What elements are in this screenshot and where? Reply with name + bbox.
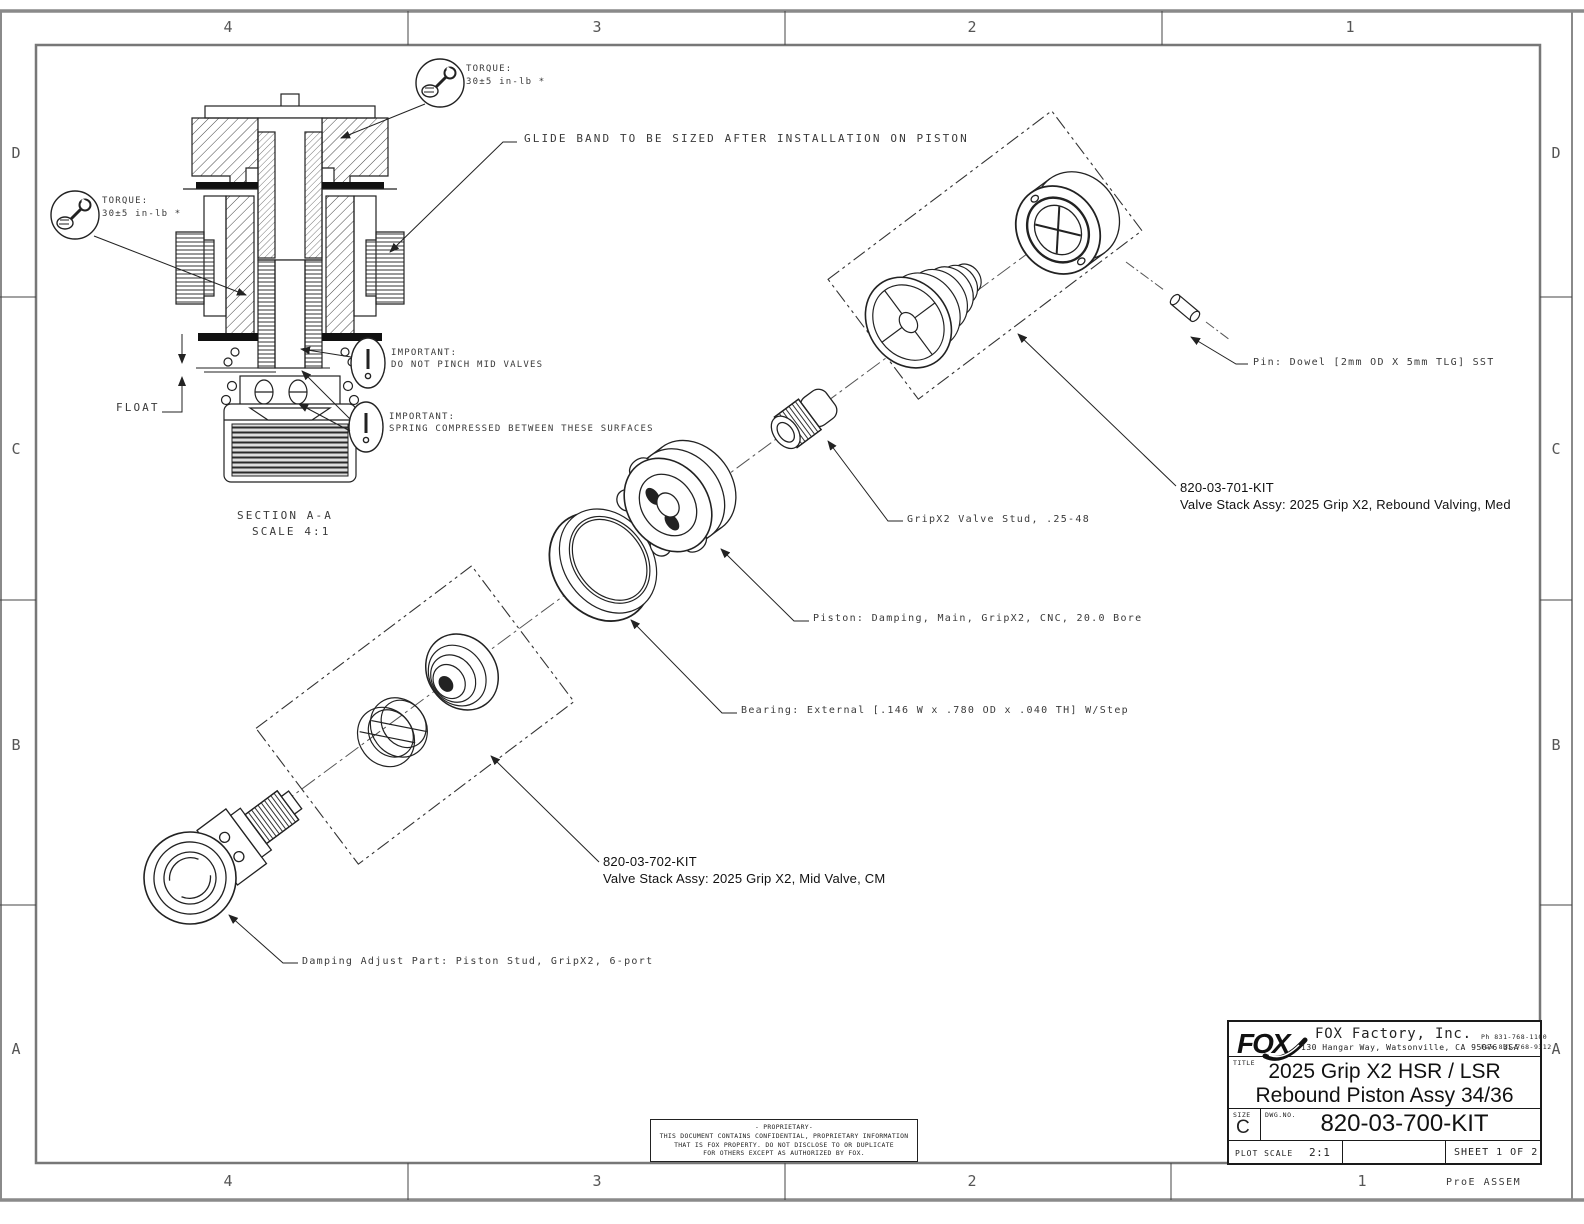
torque-icon-left <box>51 191 99 239</box>
valve-stud-label: GripX2 Valve Stud, .25-48 <box>907 514 1090 525</box>
kit-702-desc: Valve Stack Assy: 2025 Grip X2, Mid Valv… <box>603 871 885 886</box>
proprietary-line3: THAT IS FOX PROPERTY. DO NOT DISCLOSE TO… <box>651 1141 917 1150</box>
zone-left-d: D <box>4 144 28 162</box>
proe-note: ProE ASSEM <box>1446 1177 1521 1188</box>
plot-scale-value: 2:1 <box>1309 1146 1330 1159</box>
proprietary-line2: THIS DOCUMENT CONTAINS CONFIDENTIAL, PRO… <box>651 1132 917 1141</box>
zone-left-c: C <box>4 440 28 458</box>
drawing-sheet: 4 3 2 1 4 3 2 1 D C B A D C B A TORQUE: … <box>0 0 1584 1224</box>
drawing-title-line1: 2025 Grip X2 HSR / LSR <box>1229 1060 1540 1084</box>
torque-left-label: TORQUE: <box>102 196 148 206</box>
zone-bottom-2: 2 <box>960 1172 984 1190</box>
retainer-drawing <box>998 155 1136 291</box>
zone-left-b: B <box>4 736 28 754</box>
zone-top-1: 1 <box>1338 18 1362 36</box>
torque-top-value: 30±5 in-lb * <box>466 77 545 87</box>
zone-top-3: 3 <box>585 18 609 36</box>
mid-valve-stack-drawing <box>411 620 513 725</box>
zone-bottom-4: 4 <box>216 1172 240 1190</box>
mid-valve-kit-box <box>256 566 574 864</box>
important-1-text: DO NOT PINCH MID VALVES <box>391 360 543 370</box>
proprietary-notice: - PROPRIETARY- THIS DOCUMENT CONTAINS CO… <box>650 1119 918 1162</box>
important-icon-2 <box>349 402 383 452</box>
company-phone: Ph 831-768-1100 <box>1481 1033 1547 1041</box>
dowel-pin-drawing <box>1169 293 1202 323</box>
torque-top-label: TORQUE: <box>466 64 512 74</box>
section-scale: SCALE 4:1 <box>252 525 331 538</box>
zone-bottom-3: 3 <box>585 1172 609 1190</box>
mid-valve-springs-drawing <box>346 686 439 778</box>
kit-701-number: 820-03-701-KIT <box>1180 480 1274 495</box>
sheet-info: SHEET 1 OF 2 <box>1454 1147 1538 1158</box>
dwg-number: 820-03-700-KIT <box>1249 1110 1560 1138</box>
torque-left-value: 30±5 in-lb * <box>102 209 181 219</box>
torque-icon-top <box>416 59 464 107</box>
float-label: FLOAT <box>116 401 160 414</box>
pin-label: Pin: Dowel [2mm OD X 5mm TLG] SST <box>1253 357 1495 368</box>
important-2-label: IMPORTANT: <box>389 412 455 422</box>
zone-right-b: B <box>1544 736 1568 754</box>
damping-adjust-label: Damping Adjust Part: Piston Stud, GripX2… <box>302 956 653 967</box>
zone-top-4: 4 <box>216 18 240 36</box>
important-icon-1 <box>351 338 385 388</box>
piston-label: Piston: Damping, Main, GripX2, CNC, 20.0… <box>813 613 1142 624</box>
damping-adjust-part-drawing <box>126 763 323 942</box>
important-2-text: SPRING COMPRESSED BETWEEN THESE SURFACES <box>389 424 654 434</box>
kit-701-desc: Valve Stack Assy: 2025 Grip X2, Rebound … <box>1180 497 1511 512</box>
section-title: SECTION A-A <box>237 509 333 522</box>
rebound-stack-drawing <box>848 233 1006 385</box>
title-block: FOX FOX Factory, Inc. 130 Hangar Way, Wa… <box>1227 1020 1542 1165</box>
kit-702-number: 820-03-702-KIT <box>603 854 697 869</box>
company-fax: Fax 831-768-9312 <box>1481 1043 1552 1051</box>
zone-right-d: D <box>1544 144 1568 162</box>
proprietary-line1: - PROPRIETARY- <box>651 1123 917 1132</box>
important-1-label: IMPORTANT: <box>391 348 457 358</box>
company-name: FOX Factory, Inc. <box>1315 1026 1472 1042</box>
zone-bottom-1: 1 <box>1350 1172 1374 1190</box>
zone-top-2: 2 <box>960 18 984 36</box>
float-dimension <box>162 334 182 412</box>
zone-right-c: C <box>1544 440 1568 458</box>
proprietary-line4: FOR OTHERS EXCEPT AS AUTHORIZED BY FOX. <box>651 1149 917 1158</box>
bearing-label: Bearing: External [.146 W x .780 OD x .0… <box>741 705 1129 716</box>
glide-band-note: GLIDE BAND TO BE SIZED AFTER INSTALLATIO… <box>524 132 969 145</box>
drawing-title-line2: Rebound Piston Assy 34/36 <box>1229 1084 1540 1108</box>
plot-scale-label: PLOT SCALE <box>1235 1149 1293 1158</box>
zone-left-a: A <box>4 1040 28 1058</box>
